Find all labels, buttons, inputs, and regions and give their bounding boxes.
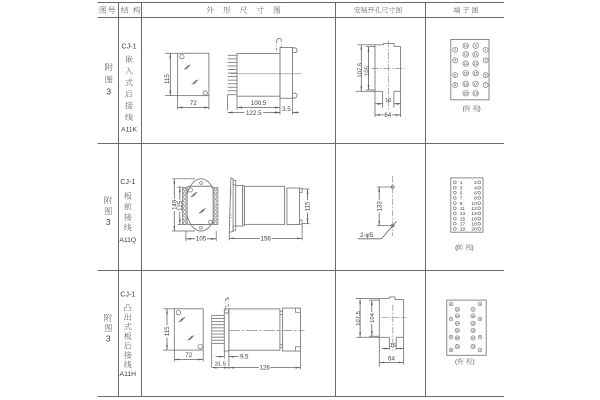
svg-text:10: 10: [464, 44, 468, 48]
svg-text:): ): [478, 106, 480, 113]
svg-text:8: 8: [454, 83, 456, 87]
svg-text:CJ-1: CJ-1: [121, 41, 136, 50]
svg-text:16: 16: [471, 216, 477, 222]
svg-text:107.5: 107.5: [357, 62, 363, 77]
svg-text:15: 15: [474, 71, 478, 75]
svg-text:18: 18: [464, 82, 468, 86]
svg-text:122.5: 122.5: [246, 110, 262, 117]
svg-text:2: 2: [454, 48, 456, 52]
svg-text:A11K: A11K: [121, 126, 138, 133]
svg-text:4: 4: [454, 59, 456, 63]
svg-text:107.5: 107.5: [356, 310, 362, 325]
svg-text:14: 14: [471, 211, 477, 217]
svg-text:18: 18: [471, 222, 477, 228]
svg-text:15: 15: [460, 216, 466, 222]
svg-text:11: 11: [474, 53, 478, 57]
svg-text:5: 5: [460, 191, 463, 197]
svg-text:11: 11: [460, 206, 465, 212]
svg-text:64: 64: [384, 112, 391, 119]
svg-text:8: 8: [474, 196, 477, 202]
svg-text:13: 13: [474, 62, 478, 66]
svg-text:19: 19: [460, 227, 466, 233]
svg-text:15: 15: [471, 328, 475, 332]
svg-text:20: 20: [464, 92, 468, 96]
svg-text:17: 17: [460, 222, 466, 228]
svg-text:7: 7: [485, 83, 487, 87]
svg-text:12: 12: [471, 206, 477, 212]
svg-text:18: 18: [456, 336, 460, 340]
svg-text:5: 5: [485, 73, 487, 77]
svg-text:16: 16: [390, 343, 396, 349]
svg-text:A11H: A11H: [120, 371, 137, 378]
svg-text:3: 3: [460, 185, 463, 191]
svg-text:10: 10: [471, 201, 477, 207]
svg-text:115: 115: [164, 326, 171, 336]
svg-text:A11Q: A11Q: [119, 237, 136, 244]
svg-text:): ): [471, 244, 473, 251]
svg-text:115: 115: [305, 201, 312, 211]
svg-text:100.5: 100.5: [251, 100, 267, 107]
svg-text:12: 12: [464, 53, 468, 57]
svg-text:105: 105: [196, 236, 207, 243]
svg-text:104: 104: [370, 312, 376, 323]
svg-text:CJ-1: CJ-1: [120, 289, 135, 298]
svg-text:72: 72: [190, 100, 197, 107]
svg-text:13: 13: [471, 321, 475, 325]
svg-text:9: 9: [460, 201, 463, 207]
svg-text:20: 20: [456, 345, 460, 349]
svg-text:133: 133: [376, 201, 383, 212]
svg-text:4: 4: [474, 185, 477, 191]
svg-text:31.5: 31.5: [215, 362, 227, 368]
svg-text:14: 14: [456, 321, 460, 325]
svg-text:19: 19: [471, 345, 475, 349]
svg-text:156: 156: [261, 235, 272, 242]
svg-text:16: 16: [385, 98, 391, 104]
svg-text:1: 1: [485, 48, 487, 52]
svg-text:16: 16: [456, 328, 460, 332]
svg-text:17: 17: [474, 82, 478, 86]
svg-text:11: 11: [471, 314, 474, 318]
svg-text:105: 105: [365, 65, 371, 76]
svg-text:6: 6: [474, 191, 477, 197]
svg-text:9: 9: [475, 44, 477, 48]
svg-text:12: 12: [456, 314, 460, 318]
svg-text:3.5: 3.5: [282, 106, 291, 113]
svg-text:6: 6: [454, 73, 456, 77]
svg-text:64: 64: [388, 355, 395, 362]
svg-text:CJ-1: CJ-1: [120, 177, 135, 186]
svg-text:3: 3: [485, 59, 487, 63]
svg-text:10: 10: [456, 307, 460, 311]
svg-text:126: 126: [260, 365, 271, 372]
svg-text:3: 3: [106, 333, 111, 343]
svg-text:2: 2: [474, 180, 477, 186]
svg-text:17: 17: [471, 336, 475, 340]
svg-text:): ): [472, 359, 474, 366]
svg-text:7: 7: [460, 196, 463, 202]
svg-text:115: 115: [164, 74, 171, 84]
svg-text:3: 3: [106, 217, 111, 227]
svg-text:13: 13: [460, 211, 466, 217]
svg-text:20: 20: [471, 227, 477, 233]
svg-text:2-φ5: 2-φ5: [360, 232, 374, 239]
svg-text:1: 1: [460, 180, 463, 186]
svg-text:16: 16: [464, 71, 468, 75]
svg-text:3: 3: [106, 87, 111, 97]
svg-text:14: 14: [464, 62, 468, 66]
svg-text:72: 72: [185, 352, 192, 359]
svg-text:19: 19: [474, 92, 478, 96]
svg-text:125: 125: [178, 200, 184, 211]
svg-text:9.5: 9.5: [240, 355, 249, 361]
